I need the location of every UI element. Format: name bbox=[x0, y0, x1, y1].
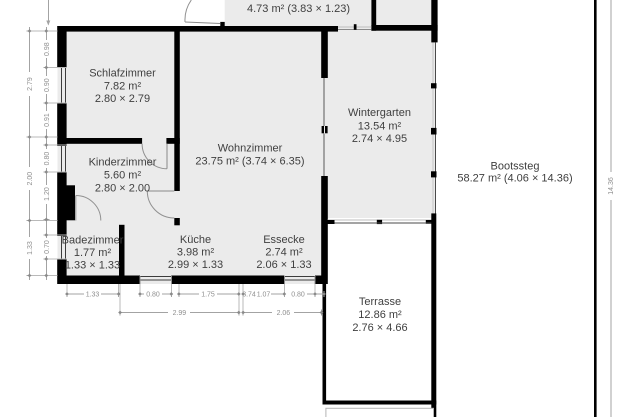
svg-text:0.80: 0.80 bbox=[146, 292, 160, 299]
svg-text:2.00: 2.00 bbox=[27, 172, 34, 186]
svg-text:Wintergarten: Wintergarten bbox=[348, 107, 411, 119]
svg-text:2.80 × 2.00: 2.80 × 2.00 bbox=[95, 183, 150, 195]
svg-text:1.77 m²: 1.77 m² bbox=[74, 247, 112, 259]
svg-text:3.98 m²: 3.98 m² bbox=[177, 247, 215, 259]
svg-text:4.73 m² (3.83 × 1.23): 4.73 m² (3.83 × 1.23) bbox=[247, 3, 350, 15]
svg-text:23.75 m² (3.74 × 6.35): 23.75 m² (3.74 × 6.35) bbox=[195, 156, 304, 168]
svg-text:13.54 m²: 13.54 m² bbox=[358, 120, 402, 132]
svg-text:0.91: 0.91 bbox=[44, 113, 51, 127]
svg-text:3.74: 3.74 bbox=[242, 292, 256, 299]
svg-text:5.60 m²: 5.60 m² bbox=[104, 170, 142, 182]
svg-text:2.76 × 4.66: 2.76 × 4.66 bbox=[352, 322, 407, 334]
svg-text:0.90: 0.90 bbox=[44, 78, 51, 92]
svg-text:1.07: 1.07 bbox=[257, 292, 271, 299]
svg-text:Kinderzimmer: Kinderzimmer bbox=[89, 157, 157, 169]
svg-text:0.70: 0.70 bbox=[44, 240, 51, 254]
svg-text:1.33: 1.33 bbox=[27, 241, 34, 255]
svg-text:Essecke: Essecke bbox=[263, 234, 305, 246]
svg-text:2.80 × 2.79: 2.80 × 2.79 bbox=[95, 93, 150, 105]
svg-text:7.82 m²: 7.82 m² bbox=[104, 81, 142, 93]
svg-text:Schlafzimmer: Schlafzimmer bbox=[89, 68, 156, 80]
svg-text:2.06 × 1.33: 2.06 × 1.33 bbox=[256, 259, 311, 271]
svg-text:1.33 × 1.33: 1.33 × 1.33 bbox=[65, 260, 120, 272]
svg-text:58.27 m² (4.06 × 14.36): 58.27 m² (4.06 × 14.36) bbox=[457, 173, 572, 185]
svg-text:2.99: 2.99 bbox=[173, 310, 187, 317]
svg-text:Bootssteg: Bootssteg bbox=[491, 161, 540, 173]
svg-text:0.80: 0.80 bbox=[291, 292, 305, 299]
svg-text:14.36: 14.36 bbox=[608, 177, 615, 195]
svg-text:1.33: 1.33 bbox=[86, 292, 100, 299]
svg-text:1.20: 1.20 bbox=[44, 187, 51, 201]
svg-text:0.98: 0.98 bbox=[44, 42, 51, 56]
svg-text:Badezimmer: Badezimmer bbox=[62, 235, 124, 247]
svg-text:2.99 × 1.33: 2.99 × 1.33 bbox=[168, 259, 223, 271]
svg-text:Terrasse: Terrasse bbox=[359, 296, 401, 308]
svg-text:Küche: Küche bbox=[180, 234, 211, 246]
svg-text:1.75: 1.75 bbox=[201, 292, 215, 299]
svg-text:2.74 × 4.95: 2.74 × 4.95 bbox=[352, 133, 407, 145]
svg-text:Wohnzimmer: Wohnzimmer bbox=[218, 143, 283, 155]
svg-text:0.80: 0.80 bbox=[44, 152, 51, 166]
svg-text:2.06: 2.06 bbox=[277, 310, 291, 317]
svg-text:2.79: 2.79 bbox=[27, 77, 34, 91]
svg-text:12.86 m²: 12.86 m² bbox=[358, 309, 402, 321]
svg-text:2.74 m²: 2.74 m² bbox=[265, 247, 303, 259]
